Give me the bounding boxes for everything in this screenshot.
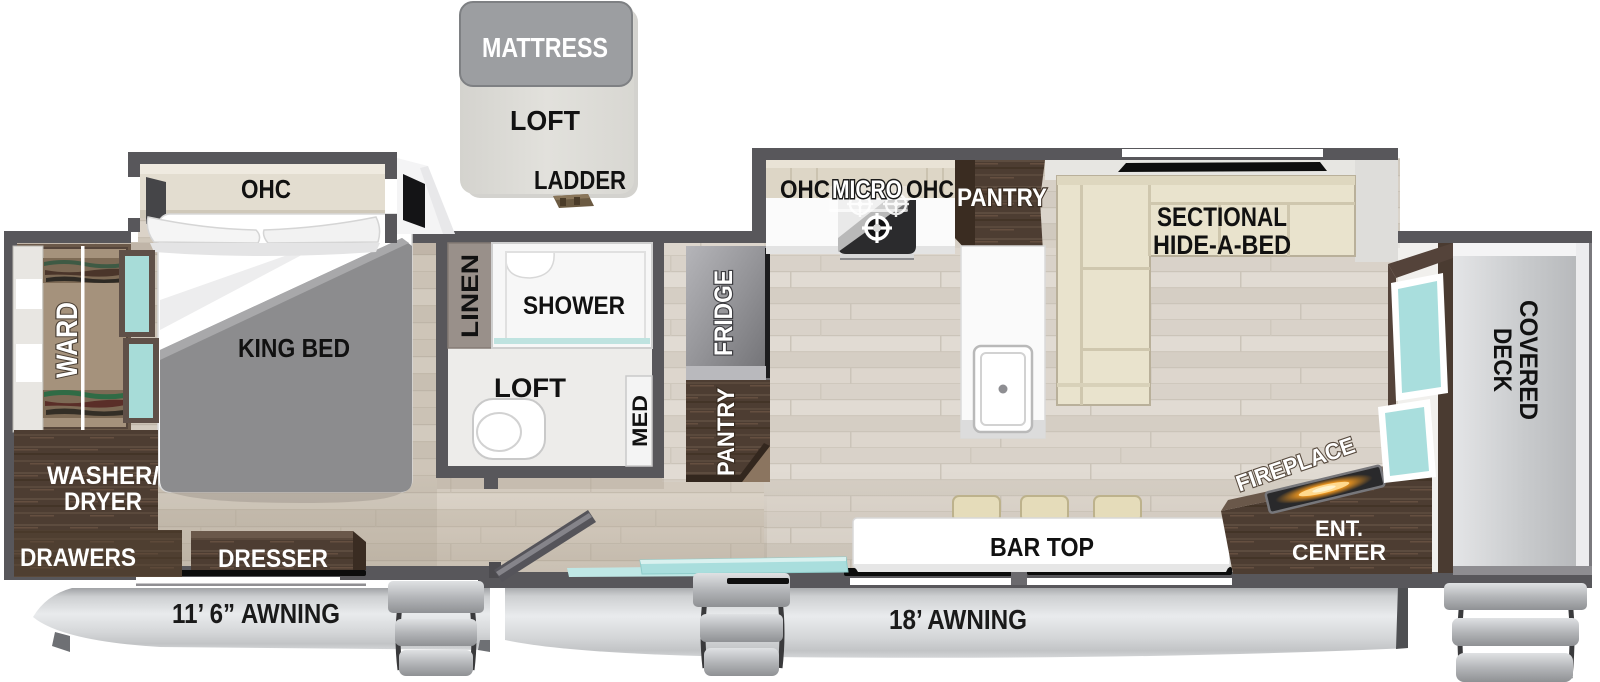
svg-text:WASHER/: WASHER/ (47, 462, 159, 490)
svg-text:MICRO: MICRO (832, 176, 902, 204)
svg-text:PANTRY: PANTRY (957, 184, 1047, 212)
svg-text:KING BED: KING BED (238, 333, 350, 363)
svg-text:MATTRESS: MATTRESS (482, 32, 608, 63)
svg-text:WARD: WARD (51, 302, 84, 378)
svg-text:DRAWERS: DRAWERS (20, 544, 136, 572)
svg-text:OHC: OHC (906, 176, 954, 204)
svg-text:OHC: OHC (241, 174, 291, 204)
svg-text:SECTIONAL: SECTIONAL (1157, 202, 1287, 232)
svg-text:LADDER: LADDER (534, 165, 626, 195)
svg-text:LOFT: LOFT (494, 373, 567, 403)
svg-text:SHOWER: SHOWER (523, 292, 625, 320)
svg-text:BAR TOP: BAR TOP (990, 532, 1094, 562)
svg-text:OHC: OHC (780, 176, 830, 204)
svg-text:LOFT: LOFT (510, 105, 580, 136)
svg-text:DRESSER: DRESSER (218, 545, 328, 573)
svg-text:11’ 6” AWNING: 11’ 6” AWNING (172, 598, 340, 629)
svg-text:DRYER: DRYER (64, 488, 142, 516)
svg-text:18’ AWNING: 18’ AWNING (889, 604, 1027, 635)
svg-text:CENTER: CENTER (1292, 540, 1386, 565)
svg-text:ENT.: ENT. (1315, 516, 1363, 541)
svg-text:HIDE-A-BED: HIDE-A-BED (1153, 230, 1291, 260)
svg-text:MED: MED (629, 395, 652, 447)
svg-text:PANTRY: PANTRY (713, 388, 740, 476)
svg-text:LINEN: LINEN (457, 254, 484, 338)
svg-text:COVERED: COVERED (1514, 300, 1542, 420)
svg-text:DECK: DECK (1488, 328, 1516, 392)
svg-text:FRIDGE: FRIDGE (710, 270, 738, 356)
